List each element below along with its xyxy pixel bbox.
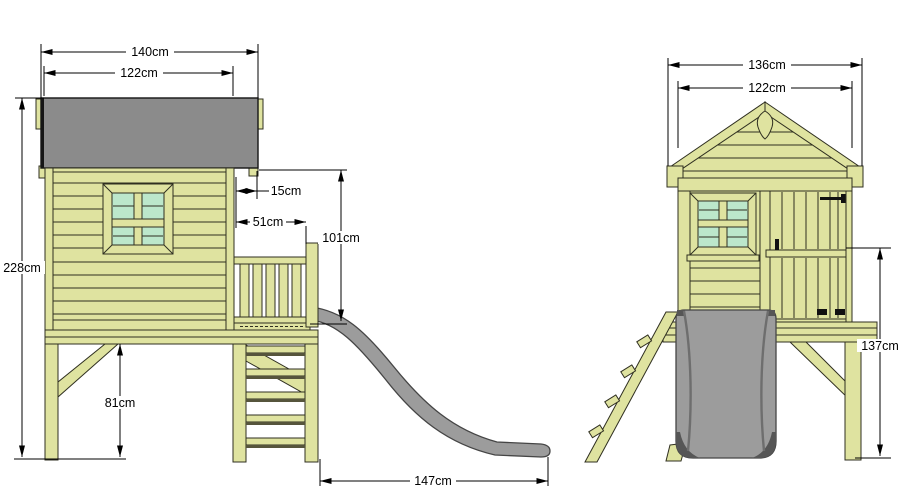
dimension-side-house-width: 122cm <box>44 66 233 96</box>
railing-post <box>306 243 318 327</box>
step-ladder-side <box>233 344 318 462</box>
balcony-railing <box>234 243 318 330</box>
front-leg-side <box>45 344 58 460</box>
wall-top-band <box>678 178 852 191</box>
front-window <box>687 193 759 261</box>
door-handle <box>775 239 779 250</box>
dimension-floor-height: 81cm <box>101 344 139 457</box>
door-hinge-top <box>820 197 844 200</box>
door-hinge-bottom-left <box>817 309 827 315</box>
ladder-rail-left <box>233 344 246 462</box>
door-hinge-bottom-right <box>835 309 845 315</box>
railing-bottom-rail <box>234 317 307 323</box>
window-muntin-horizontal <box>698 220 748 227</box>
gable-roof <box>667 102 863 187</box>
dim-floor-height-label: 81cm <box>105 396 136 410</box>
slide-front <box>676 310 776 458</box>
front-elevation-view <box>585 102 877 462</box>
dim-side-overall-height-label: 228cm <box>3 261 41 275</box>
door-mid-rail <box>766 250 848 257</box>
railing-top-rail <box>234 257 307 264</box>
access-ladder-front <box>585 312 678 462</box>
diagram-canvas: 140cm 122cm 228cm 15cm 51cm 101cm <box>0 0 900 489</box>
dim-side-overall-width-label: 140cm <box>131 45 169 59</box>
dimension-platform-depth: 51cm <box>236 215 306 244</box>
dim-platform-depth-label: 51cm <box>253 215 284 229</box>
corner-trim-front-right <box>846 191 852 322</box>
corner-trim-right <box>226 168 234 330</box>
leg-brace-front <box>790 342 852 402</box>
dim-slide-length-label: 147cm <box>414 474 452 488</box>
front-leg-right <box>845 342 861 460</box>
corner-trim-left <box>45 168 53 330</box>
window-sill <box>687 255 759 261</box>
stable-door <box>766 191 852 322</box>
dim-side-house-width-label: 122cm <box>120 66 158 80</box>
dimension-side-overall-height: 228cm <box>0 98 45 457</box>
dimension-slide-length: 147cm <box>320 457 548 488</box>
dim-roof-overhang-label: 15cm <box>271 184 302 198</box>
dim-front-house-width-label: 122cm <box>748 81 786 95</box>
slide-side-profile <box>311 307 550 457</box>
playhouse-dimension-diagram: 140cm 122cm 228cm 15cm 51cm 101cm <box>0 0 900 489</box>
roof-edge-shadow <box>41 98 44 168</box>
dim-eave-to-platform-label: 101cm <box>322 231 360 245</box>
dim-front-overall-width-label: 136cm <box>748 58 786 72</box>
leg-brace-side <box>58 344 118 397</box>
side-elevation-view <box>14 98 550 462</box>
side-window <box>103 184 173 254</box>
roof-panel-side <box>41 98 258 168</box>
ladder-rail-right <box>305 344 318 462</box>
dim-front-platform-height-label: 137cm <box>861 339 899 353</box>
window-muntin-horizontal <box>112 219 164 227</box>
